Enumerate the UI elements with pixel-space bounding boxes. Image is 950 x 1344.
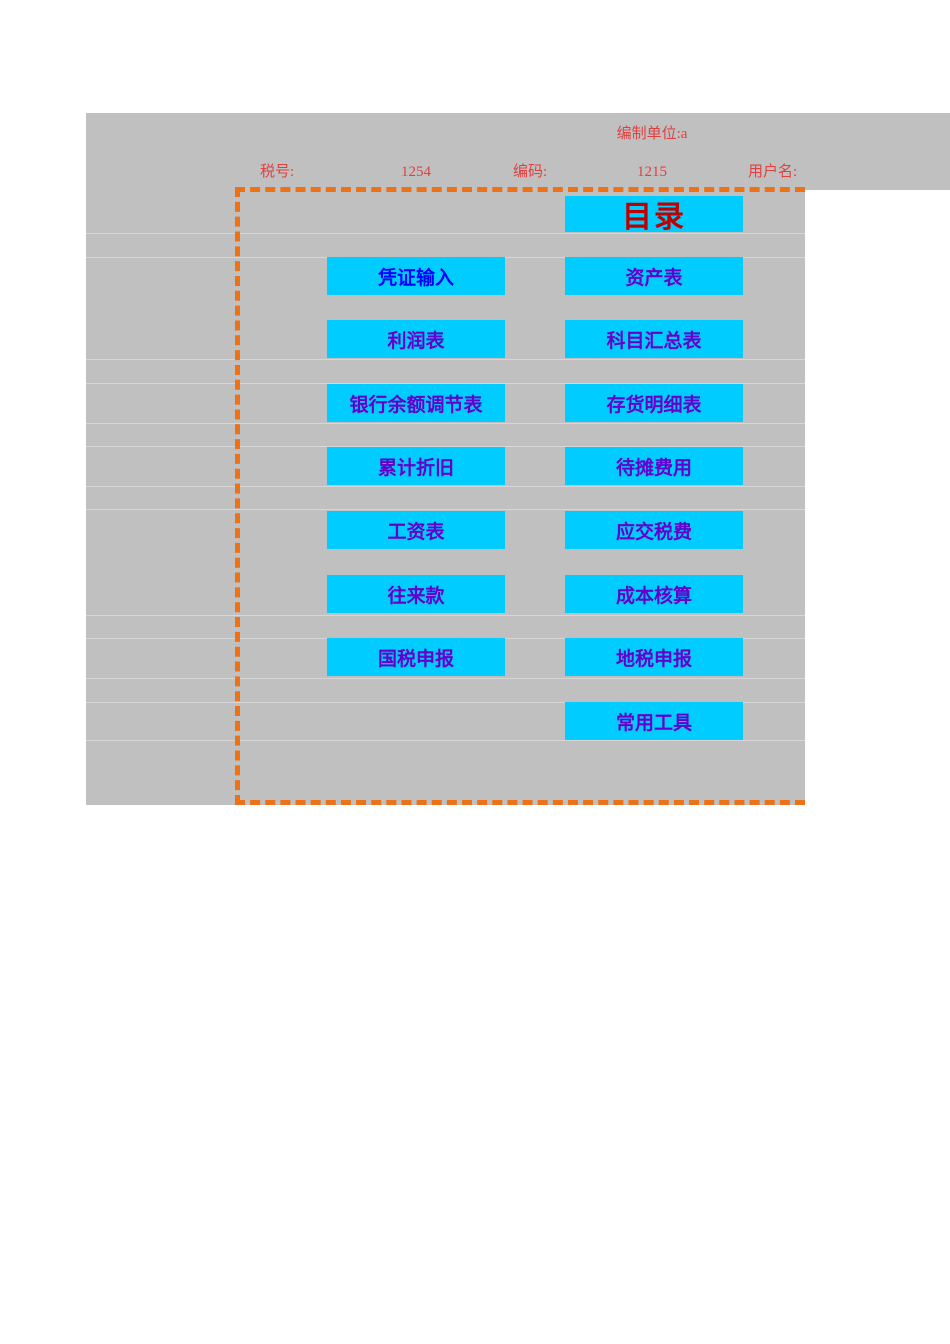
code-value: 1215	[602, 163, 702, 181]
button-cost-accounting[interactable]: 成本核算	[565, 575, 743, 613]
spreadsheet-page: 编制单位:a 税号: 1254 编码: 1215 用户名: 目录 凭证输入 利润…	[0, 0, 950, 1344]
tax-number-label: 税号:	[260, 163, 294, 181]
button-inventory-detail[interactable]: 存货明细表	[565, 384, 743, 422]
prepared-by-unit-label: 编制单位:a	[552, 125, 752, 143]
button-profit-statement[interactable]: 利润表	[327, 320, 505, 358]
button-common-tools[interactable]: 常用工具	[565, 702, 743, 740]
button-bank-reconciliation[interactable]: 银行余额调节表	[327, 384, 505, 422]
button-local-tax-filing[interactable]: 地税申报	[565, 638, 743, 676]
user-name-label: 用户名:	[748, 163, 797, 181]
directory-title: 目录	[565, 196, 743, 232]
tax-number-value: 1254	[366, 163, 466, 181]
button-asset-statement[interactable]: 资产表	[565, 257, 743, 295]
code-label: 编码:	[513, 163, 547, 181]
button-prepaid-expense[interactable]: 待摊费用	[565, 447, 743, 485]
button-tax-payable[interactable]: 应交税费	[565, 511, 743, 549]
button-national-tax-filing[interactable]: 国税申报	[327, 638, 505, 676]
button-voucher-entry[interactable]: 凭证输入	[327, 257, 505, 295]
button-current-accounts[interactable]: 往来款	[327, 575, 505, 613]
button-payroll-sheet[interactable]: 工资表	[327, 511, 505, 549]
button-account-summary[interactable]: 科目汇总表	[565, 320, 743, 358]
button-accumulated-depreciation[interactable]: 累计折旧	[327, 447, 505, 485]
